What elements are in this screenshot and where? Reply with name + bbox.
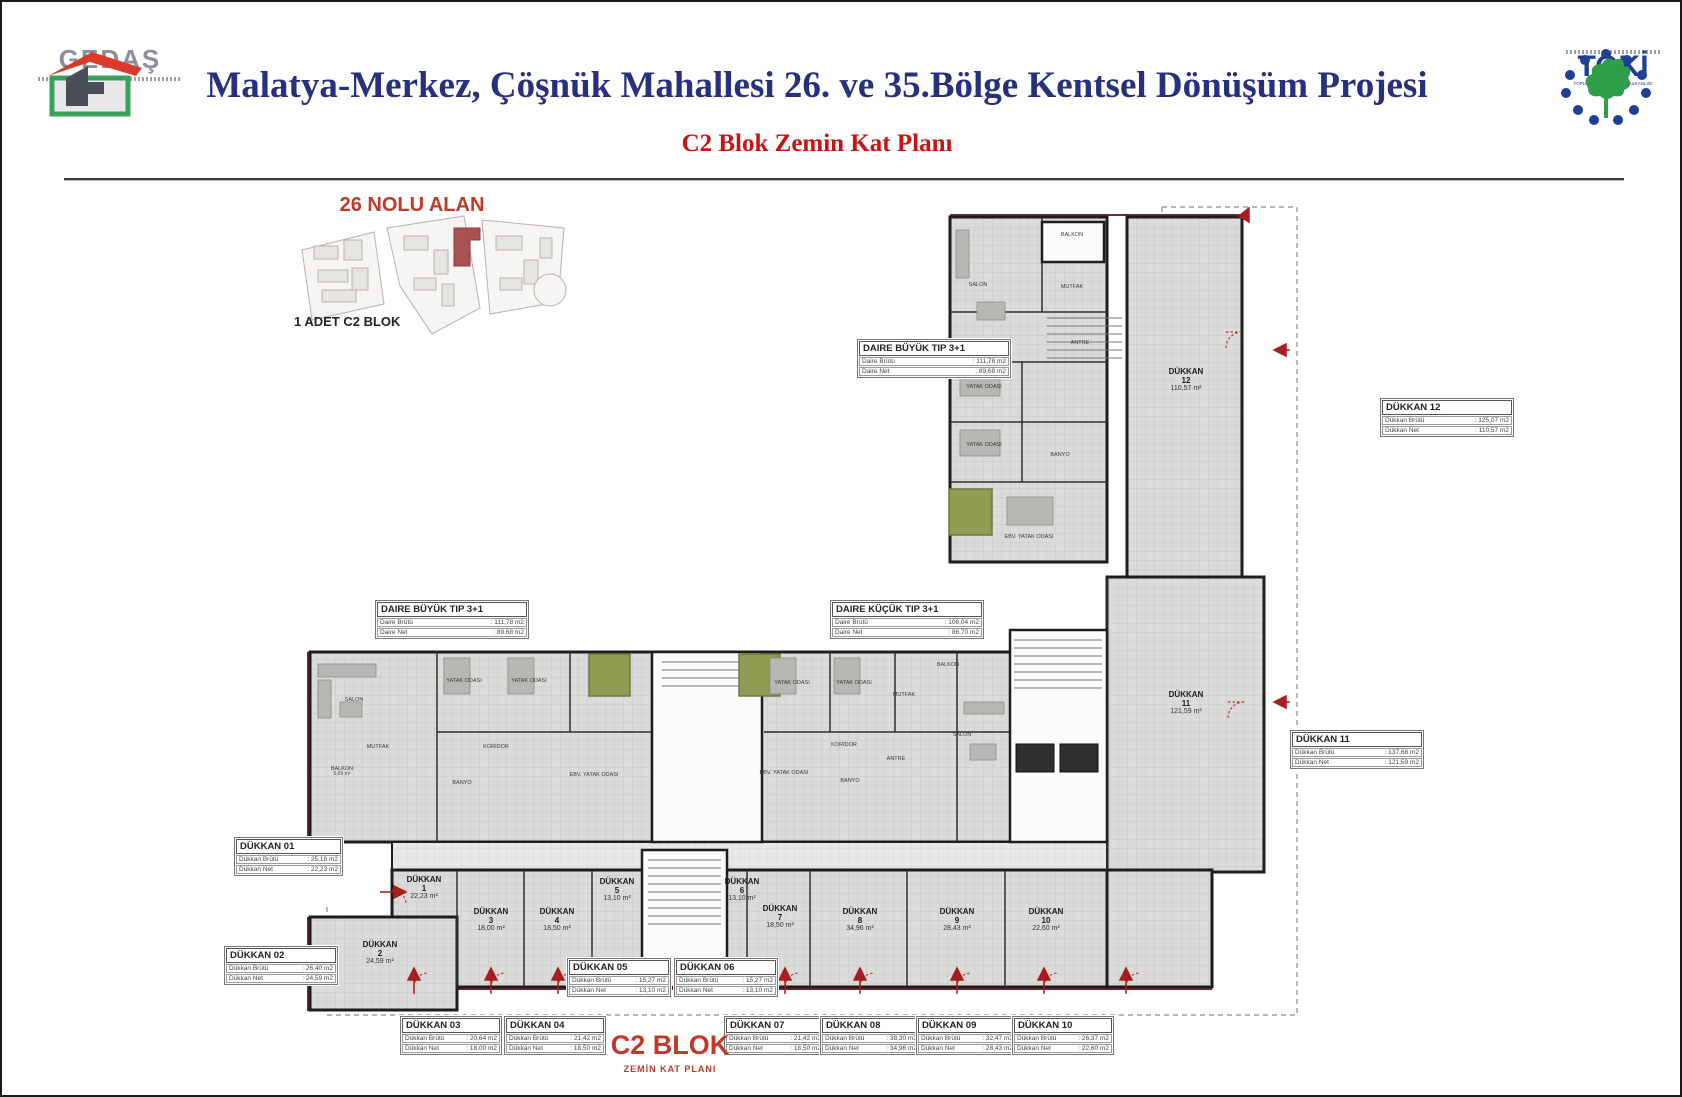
info-row-value: 18,50 m2 (570, 1045, 601, 1052)
info-row-value: 28,43 m2 (982, 1045, 1013, 1052)
info-box-title: DÜKKAN 06 (676, 960, 776, 975)
room-label: BALKON5,69 m² (310, 766, 374, 778)
shop-label-12: DÜKKAN12110,57 m² (1154, 367, 1218, 393)
drawing-sheet: GEDAŞ Malatya-Merkez, Çöşnük Mahallesi 2… (0, 0, 1682, 1097)
room-label: SALON (946, 282, 1010, 288)
info-row-label: Dükkan Net (1385, 427, 1419, 434)
info-row-value: 13,10 m2 (742, 987, 773, 994)
room-label: BALKON (916, 662, 980, 668)
info-row-value: 89,68 m2 (493, 629, 524, 636)
info-row-value: 110,57 m2 (1475, 427, 1509, 434)
info-row-label: Daire Net (862, 368, 889, 375)
info-box-title: DÜKKAN 03 (402, 1018, 500, 1033)
room-label: YATAK ODASI (497, 678, 561, 684)
block-subtitle: ZEMİN KAT PLANI (600, 1064, 740, 1074)
info-row-value: 125,07 m2 (1475, 417, 1509, 424)
info-row-value: 106,04 m2 (945, 619, 979, 626)
info-row-label: Dükkan Brütü (921, 1035, 960, 1042)
room-label: YATAK ODASI (822, 680, 886, 686)
gedas-house-icon (30, 42, 150, 120)
info-row-label: Dükkan Net (1295, 759, 1329, 766)
info-box-daire-buyuk-top: DAIRE BÜYÜK TIP 3+1 Daire Brütü111,78 m2… (857, 339, 1011, 378)
shop-label-4: DÜKKAN418,50 m² (532, 907, 582, 933)
info-row-value: 86,70 m2 (948, 629, 979, 636)
title-divider (64, 178, 1624, 181)
info-row-value: 26,40 m2 (302, 965, 333, 972)
info-row-label: Daire Brütü (862, 358, 895, 365)
site-caption: 1 ADET C2 BLOK (294, 314, 454, 329)
sheet-title: Malatya-Merkez, Çöşnük Mahallesi 26. ve … (152, 64, 1482, 107)
info-row-label: Dükkan Net (509, 1045, 543, 1052)
info-row-value: 22,60 m2 (1078, 1045, 1109, 1052)
info-row-value: 21,42 m2 (570, 1035, 601, 1042)
info-row-label: Dükkan Net (825, 1045, 859, 1052)
room-label: SALON (322, 697, 386, 703)
shop-label-7: DÜKKAN718,50 m² (755, 904, 805, 930)
info-row-label: Dükkan Brütü (1295, 749, 1334, 756)
info-row-value: 111,78 m2 (491, 619, 524, 626)
info-box-daire-buyuk-left: DAIRE BÜYÜK TIP 3+1 Daire Brütü111,78 m2… (375, 600, 529, 639)
room-label: BANYO (818, 778, 882, 784)
room-label: KORİDOR (464, 744, 528, 750)
sheet-subtitle: C2 Blok Zemin Kat Planı (152, 130, 1482, 158)
shop-label-11: DÜKKAN11121,59 m² (1154, 690, 1218, 716)
info-box-dukkan-12: DÜKKAN 12 Dükkan Brütü125,07 m2 Dükkan N… (1380, 398, 1514, 437)
info-box-title: DÜKKAN 08 (822, 1018, 920, 1033)
info-box-title: DAIRE BÜYÜK TIP 3+1 (377, 602, 527, 617)
info-row-label: Dükkan Brütü (509, 1035, 548, 1042)
info-box-dukkan-04: DÜKKAN 04 Dükkan Brütü21,42 m2 Dükkan Ne… (504, 1016, 606, 1055)
room-label: EBV. YATAK ODASI (752, 770, 816, 776)
block-title: C2 BLOK (600, 1030, 740, 1061)
info-box-dukkan-08: DÜKKAN 08 Dükkan Brütü38,30 m2 Dükkan Ne… (820, 1016, 922, 1055)
info-row-value: 18,50 m2 (790, 1045, 821, 1052)
room-label: MUTFAK (1040, 284, 1104, 290)
room-label: YATAK ODASI (952, 384, 1016, 390)
info-row-label: Dükkan Brütü (239, 856, 278, 863)
info-box-title: DÜKKAN 04 (506, 1018, 604, 1033)
info-row-label: Dükkan Net (229, 975, 263, 982)
shop-label-10: DÜKKAN1022,60 m² (1020, 907, 1072, 933)
info-row-label: Dükkan Net (1017, 1045, 1051, 1052)
info-row-label: Dükkan Net (921, 1045, 955, 1052)
info-box-dukkan-11: DÜKKAN 11 Dükkan Brütü137,68 m2 Dükkan N… (1290, 730, 1424, 769)
room-label: YATAK ODASI (432, 678, 496, 684)
toki-logo: TOKİ TOPLU KONUT İDARESİ BAŞKANLIĞI (1558, 48, 1668, 86)
info-box-dukkan-03: DÜKKAN 03 Dükkan Brütü20,64 m2 Dükkan Ne… (400, 1016, 502, 1055)
info-row-value: 15,27 m2 (742, 977, 773, 984)
room-label: MUTFAK (872, 692, 936, 698)
info-row-label: Dükkan Net (572, 987, 606, 994)
room-label: SALON (930, 732, 994, 738)
info-row-value: 32,47 m2 (982, 1035, 1013, 1042)
info-row-value: 26,37 m2 (1078, 1035, 1109, 1042)
room-label: ANTRE (1048, 340, 1112, 346)
info-row-value: 137,68 m2 (1385, 749, 1419, 756)
info-box-dukkan-09: DÜKKAN 09 Dükkan Brütü32,47 m2 Dükkan Ne… (916, 1016, 1018, 1055)
shop-label-3: DÜKKAN318,00 m² (466, 907, 516, 933)
info-box-dukkan-02: DÜKKAN 02 Dükkan Brütü26,40 m2 Dükkan Ne… (224, 946, 338, 985)
room-label: BANYO (430, 780, 494, 786)
info-box-title: DÜKKAN 09 (918, 1018, 1016, 1033)
info-row-label: Dükkan Brütü (679, 977, 718, 984)
shop-label-9: DÜKKAN928,43 m² (932, 907, 982, 933)
info-box-dukkan-06: DÜKKAN 06 Dükkan Brütü15,27 m2 Dükkan Ne… (674, 958, 778, 997)
info-row-label: Dükkan Net (405, 1045, 439, 1052)
info-row-label: Dükkan Brütü (405, 1035, 444, 1042)
info-box-title: DÜKKAN 11 (1292, 732, 1422, 747)
room-label: EBV. YATAK ODASI (562, 772, 626, 778)
room-label: YATAK ODASI (952, 442, 1016, 448)
highlighted-c2-block (454, 228, 480, 266)
info-row-label: Dükkan Net (239, 866, 273, 873)
info-box-dukkan-05: DÜKKAN 05 Dükkan Brütü15,27 m2 Dükkan Ne… (567, 958, 671, 997)
info-row-label: Dükkan Brütü (572, 977, 611, 984)
info-row-label: Dükkan Brütü (1017, 1035, 1056, 1042)
info-box-title: DÜKKAN 01 (236, 839, 341, 854)
info-row-value: 25,18 m2 (307, 856, 338, 863)
info-row-value: 34,96 m2 (886, 1045, 917, 1052)
info-row-value: 20,64 m2 (466, 1035, 497, 1042)
room-label: BANYO (1028, 452, 1092, 458)
info-row-label: Dükkan Net (679, 987, 713, 994)
info-row-label: Dükkan Brütü (229, 965, 268, 972)
shop-label-6: DÜKKAN613,10 m² (717, 877, 767, 903)
info-box-title: DÜKKAN 05 (569, 960, 669, 975)
shop-label-5: DÜKKAN513,10 m² (592, 877, 642, 903)
room-label: EBV. YATAK ODASI (997, 534, 1061, 540)
info-row-label: Daire Net (380, 629, 407, 636)
shop-label-2: DÜKKAN224,59 m² (350, 940, 410, 966)
room-label: MUTFAK (346, 744, 410, 750)
room-label: ANTRE (864, 756, 928, 762)
info-row-value: 38,30 m2 (886, 1035, 917, 1042)
info-box-title: DAIRE KÜÇÜK TIP 3+1 (832, 602, 982, 617)
info-box-dukkan-10: DÜKKAN 10 Dükkan Brütü26,37 m2 Dükkan Ne… (1012, 1016, 1114, 1055)
info-row-value: 89,68 m2 (975, 368, 1006, 375)
shop-label-1: DÜKKAN122,23 m² (402, 875, 446, 901)
toki-emblem-icon (1558, 48, 1654, 126)
info-row-label: Dükkan Brütü (825, 1035, 864, 1042)
info-row-label: Daire Brütü (835, 619, 868, 626)
info-row-value: 15,27 m2 (635, 977, 666, 984)
room-label: BALKON (1040, 232, 1104, 238)
info-row-value: 121,59 m2 (1385, 759, 1419, 766)
info-box-title: DAIRE BÜYÜK TIP 3+1 (859, 341, 1009, 356)
info-row-value: 13,10 m2 (635, 987, 666, 994)
info-row-value: 18,00 m2 (466, 1045, 497, 1052)
info-box-title: DÜKKAN 07 (726, 1018, 824, 1033)
info-row-label: Dükkan Brütü (1385, 417, 1424, 424)
info-row-label: Daire Brütü (380, 619, 413, 626)
room-label: KORİDOR (812, 742, 876, 748)
info-row-value: 24,59 m2 (302, 975, 333, 982)
room-label: YATAK ODASI (760, 680, 824, 686)
info-row-value: 22,23 m2 (307, 866, 338, 873)
info-box-title: DÜKKAN 12 (1382, 400, 1512, 415)
info-box-title: DÜKKAN 02 (226, 948, 336, 963)
info-box-title: DÜKKAN 10 (1014, 1018, 1112, 1033)
info-row-value: 21,42 m2 (790, 1035, 821, 1042)
info-box-daire-kucuk: DAIRE KÜÇÜK TIP 3+1 Daire Brütü106,04 m2… (830, 600, 984, 639)
info-row-label: Daire Net (835, 629, 862, 636)
info-row-value: 111,78 m2 (973, 358, 1006, 365)
info-box-dukkan-01: DÜKKAN 01 Dükkan Brütü25,18 m2 Dükkan Ne… (234, 837, 343, 876)
shop-label-8: DÜKKAN834,96 m² (835, 907, 885, 933)
site-area-title: 26 NOLU ALAN (302, 194, 522, 217)
